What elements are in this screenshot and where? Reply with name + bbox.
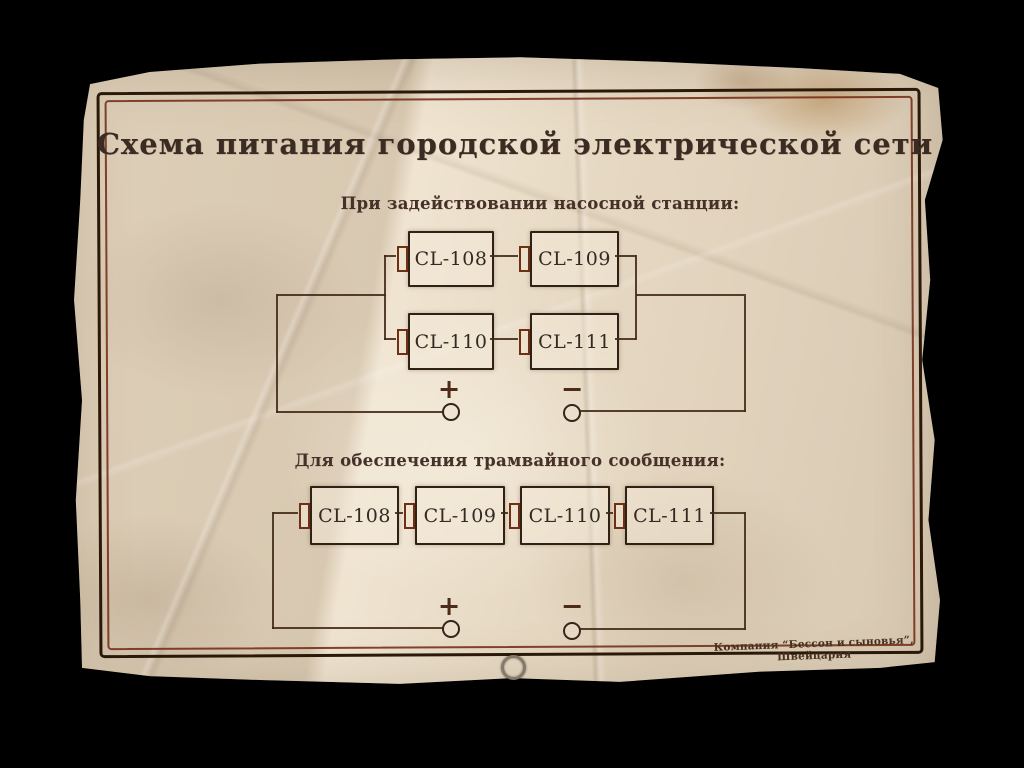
battery-terminal-tab: [299, 503, 310, 529]
wire-segment: [606, 512, 613, 514]
battery-box: CL-109: [415, 486, 505, 545]
battery-box: CL-108: [310, 486, 399, 545]
positive-terminal-socket: [442, 620, 460, 638]
negative-terminal-label: −: [556, 594, 588, 620]
game-document-view: Схема питания городской электрической се…: [0, 0, 1024, 768]
wire-segment: [501, 512, 508, 514]
battery-label: CL-109: [417, 488, 503, 543]
battery-box: CL-111: [625, 486, 714, 545]
battery-terminal-tab: [404, 503, 415, 529]
wire-segment: [272, 512, 274, 629]
positive-terminal-label: +: [433, 594, 465, 620]
battery-terminal-tab: [509, 503, 520, 529]
battery-label: CL-108: [312, 488, 397, 543]
metal-ring-icon: [501, 655, 526, 680]
wire-segment: [272, 627, 443, 629]
battery-terminal-tab: [614, 503, 625, 529]
wire-segment: [744, 512, 746, 630]
battery-label: CL-110: [522, 488, 608, 543]
negative-terminal-socket: [563, 622, 581, 640]
battery-label: CL-111: [627, 488, 712, 543]
wire-segment: [580, 628, 746, 630]
wire-segment: [273, 512, 298, 514]
wire-segment: [710, 512, 745, 514]
battery-box: CL-110: [520, 486, 610, 545]
wire-segment: [395, 512, 403, 514]
